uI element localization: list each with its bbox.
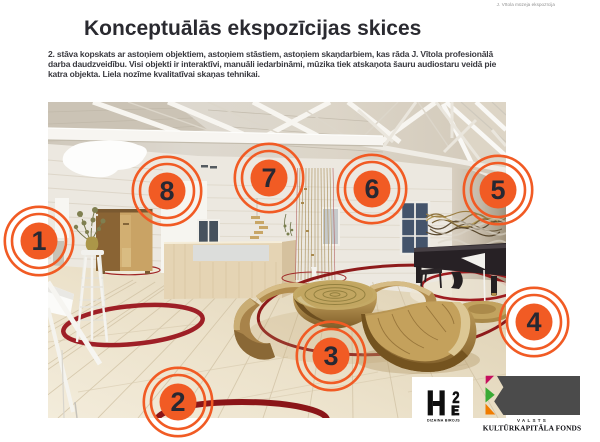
svg-text:2: 2 — [452, 388, 459, 407]
svg-text:KULTŪRKAPITĀLA FONDS: KULTŪRKAPITĀLA FONDS — [483, 424, 581, 433]
svg-text:DIZAINA BIROJS: DIZAINA BIROJS — [427, 418, 460, 422]
svg-text:VALSTS: VALSTS — [517, 418, 548, 423]
